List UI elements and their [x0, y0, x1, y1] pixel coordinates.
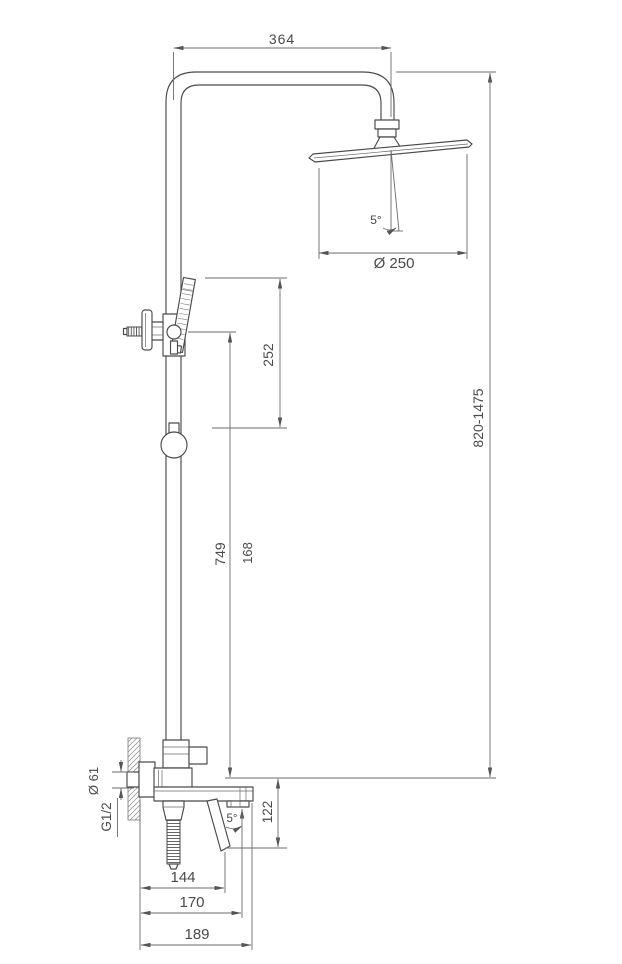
dim-spout-tilt: 5°: [226, 813, 242, 829]
dim-thread-size-label: G1/2: [99, 802, 114, 831]
dim-head-diameter-label: Ø 250: [374, 255, 415, 272]
dim-handshower-span: 252: [205, 278, 287, 428]
dim-reach-handle-label: 144: [170, 869, 195, 886]
head-connector: [373, 120, 401, 150]
dim-head-tilt-label: 5°: [370, 213, 382, 227]
bracket-pivot-ball: [167, 325, 181, 339]
diverter-box: [189, 747, 207, 764]
knob-screw: [127, 327, 142, 336]
dim-reach-aerator-label: 170: [179, 894, 204, 911]
dim-riser-length-label: 749: [212, 542, 228, 566]
mixer-assembly: [127, 740, 253, 869]
dim-top-width-label: 364: [269, 31, 295, 47]
head-tilt-construction: [383, 150, 403, 231]
dim-height-range-label: 820-1475: [470, 388, 486, 447]
rail-slide-ball: [161, 423, 187, 458]
thread-connector: [127, 772, 139, 787]
dim-riser-length: 749 168: [188, 332, 255, 777]
dim-spout-drop-label: 122: [260, 801, 275, 824]
dim-top-width: 364: [174, 31, 392, 117]
screw-tip: [124, 329, 128, 335]
dim-reach-spout-label: 189: [184, 926, 209, 943]
spout: [154, 787, 253, 801]
hose-nut: [163, 801, 184, 820]
dim-thread-size: G1/2: [99, 798, 118, 837]
aerator: [227, 801, 249, 807]
wall-flange: [139, 762, 155, 797]
shower-column-drawing: 364 Ø 250 5° 820-1475 252 749 168 122 5°: [0, 0, 622, 964]
bracket-slot: [171, 341, 178, 354]
shower-hose: [167, 820, 180, 864]
dim-flange-diameter-label: Ø 61: [86, 767, 101, 795]
dim-handshower-span-label: 252: [260, 343, 276, 367]
hand-shower-assembly: [124, 278, 196, 356]
dim-spout-tilt-label: 5°: [227, 813, 238, 825]
technical-drawing-page: 364 Ø 250 5° 820-1475 252 749 168 122 5°: [0, 0, 622, 964]
locking-knob: [142, 310, 152, 350]
dim-height-range: 820-1475: [225, 72, 496, 778]
bracket-arm: [151, 322, 163, 340]
dim-slider-span-label: 168: [240, 542, 255, 564]
